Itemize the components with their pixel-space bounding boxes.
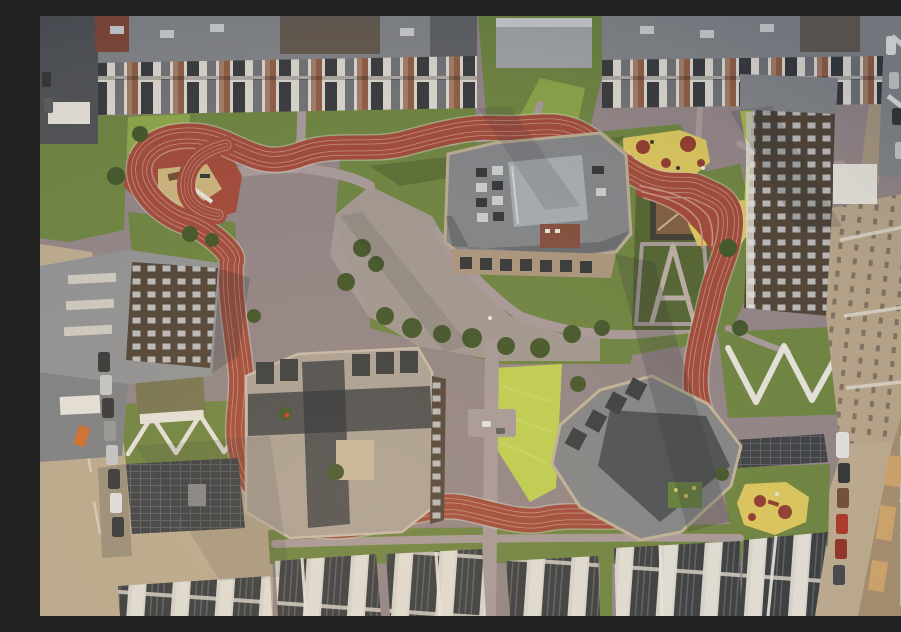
aerial-photo: Golden-hour aerial top-down photograph o… — [40, 16, 901, 616]
golden-hour-light-overlay — [40, 16, 901, 616]
aerial-photo-canvas: paved courtyard plaza western street wit… — [40, 16, 901, 616]
